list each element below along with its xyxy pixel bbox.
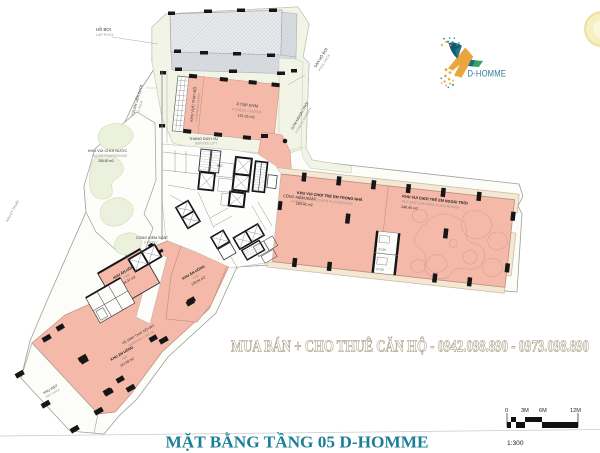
svg-text:6M: 6M	[539, 408, 547, 414]
svg-text:1:300: 1:300	[507, 440, 524, 447]
svg-text:KHU VUI CHƠI NƯỚC: KHU VUI CHƠI NƯỚC	[88, 148, 128, 153]
svg-text:SERVICE LIFT: SERVICE LIFT	[195, 142, 217, 146]
svg-text:WC: WC	[217, 164, 223, 168]
svg-text:12M: 12M	[570, 408, 581, 414]
svg-text:0: 0	[505, 408, 508, 414]
svg-text:D-HOMME: D-HOMME	[468, 69, 507, 79]
svg-text:CỔNG KIỂM SOÁT: CỔNG KIỂM SOÁT	[136, 235, 169, 240]
svg-text:LAP POOL: LAP POOL	[96, 33, 114, 37]
svg-text:MẶT BẰNG TẦNG 05 D-HOMME: MẶT BẰNG TẦNG 05 D-HOMME	[166, 433, 429, 452]
svg-text:27.00: 27.00	[376, 267, 384, 272]
svg-text:27.00: 27.00	[378, 247, 386, 252]
svg-text:3M: 3M	[521, 408, 529, 414]
svg-text:MUA BÁN + CHO THUÊ CĂN HỘ - 09: MUA BÁN + CHO THUÊ CĂN HỘ - 0942.098.890…	[231, 337, 589, 356]
svg-text:256.50 m2: 256.50 m2	[98, 159, 114, 163]
svg-text:HỒ BƠI: HỒ BƠI	[96, 27, 111, 32]
svg-text:WATER PLAYGROUND: WATER PLAYGROUND	[92, 154, 128, 158]
svg-text:THANG DỊCH VỤ: THANG DỊCH VỤ	[189, 137, 218, 141]
